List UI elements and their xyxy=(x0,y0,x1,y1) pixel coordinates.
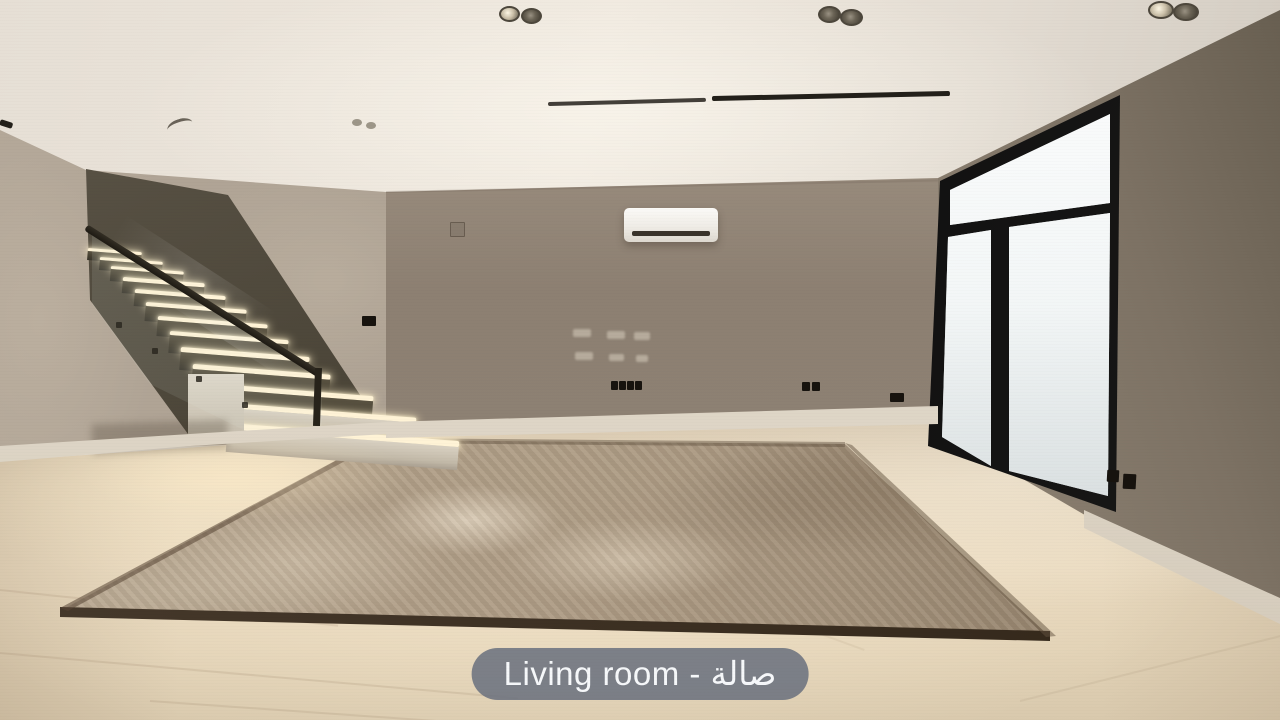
wall-socket xyxy=(627,381,634,390)
glass-clamp xyxy=(242,402,248,408)
glass-clamp xyxy=(116,322,122,328)
wall-patch xyxy=(607,331,625,339)
wall-patch xyxy=(636,355,648,362)
wall-patch xyxy=(575,352,593,360)
wall-socket xyxy=(1107,470,1120,483)
wall-patch xyxy=(609,354,624,361)
wall-socket xyxy=(890,393,904,402)
wall-socket xyxy=(362,316,376,326)
ceiling-spotlight xyxy=(1173,3,1199,21)
glass-clamp xyxy=(196,376,202,382)
wall-patch xyxy=(573,329,591,337)
wall-socket xyxy=(812,382,820,391)
wall-socket xyxy=(635,381,642,390)
glass-clamp xyxy=(152,348,158,354)
room-photo: Living room - صالة xyxy=(0,0,1280,720)
wall-socket xyxy=(1123,474,1137,490)
air-conditioner xyxy=(624,208,718,242)
wall-socket xyxy=(611,381,618,390)
ac-vent xyxy=(632,231,710,236)
ceiling-spotlight xyxy=(818,6,841,23)
ceiling-fixture xyxy=(352,119,362,126)
wall-patch xyxy=(634,332,650,340)
wall-sensor xyxy=(450,222,465,237)
photo-caption-text: Living room - صالة xyxy=(504,655,777,692)
ceiling-spotlight xyxy=(499,6,520,22)
ceiling-spotlight xyxy=(521,8,542,24)
wall-socket xyxy=(802,382,810,391)
photo-caption-pill: Living room - صالة xyxy=(472,648,809,700)
ceiling-fixture xyxy=(366,122,376,129)
wall-socket xyxy=(619,381,626,390)
ceiling-spotlight xyxy=(1148,1,1174,19)
ceiling-spotlight xyxy=(840,9,863,26)
